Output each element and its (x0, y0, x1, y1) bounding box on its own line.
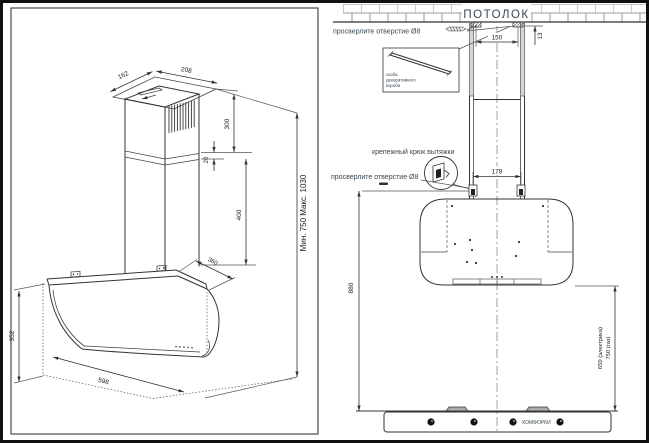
dim-hood-to-cooktop-electric: 650 (электрика) (598, 327, 604, 369)
screw-anchor-icon (379, 183, 388, 186)
ceiling-label: ПОТОЛОК (463, 9, 529, 21)
dim-total-height: Мин. 750 Макс. 1030 (299, 174, 308, 251)
pan-support-icon (446, 407, 468, 411)
dim-duct-width: 208 (180, 66, 192, 75)
dimensions-left: 162 208 300 20 400 Мин. 750 Макс. 1030 3… (9, 66, 308, 398)
drill-note-top: просверлите отверстие Ø8 (333, 26, 514, 36)
dim-hood-depth: 360 (207, 257, 219, 267)
cooktop-body (384, 412, 611, 432)
right-panel: ПОТОЛОК просверлите отверстие Ø8 (331, 4, 646, 434)
hook-label: крепежный крюк вытяжки (372, 148, 455, 156)
dim-upper-duct: 300 (224, 118, 231, 129)
mounting-holes (451, 205, 544, 278)
dim-bracket-spacing: 150 (492, 35, 503, 42)
burners-label: КОМФОРКИ (522, 420, 551, 426)
dim-hook-spacing: 178 (492, 169, 503, 176)
hood-front (420, 185, 573, 285)
dim-ceiling-offset: 13 (538, 32, 544, 39)
dimension-cage (43, 283, 292, 399)
screw-anchor-icon (446, 27, 466, 31)
inset-label-line1: скоба (386, 72, 398, 77)
hood-hook-icon (71, 271, 80, 277)
burner-knob-icon (509, 418, 516, 425)
dim-overlap: 20 (204, 156, 210, 163)
burner-knob-icon (427, 418, 434, 425)
control-buttons (175, 346, 193, 349)
dim-lower-duct: 400 (236, 209, 243, 220)
installation-drawing: 162 208 300 20 400 Мин. 750 Макс. 1030 3… (0, 0, 649, 443)
hood-body-outline (420, 199, 573, 285)
outer-frame (2, 2, 648, 442)
dim-hood-to-cooktop-gas: 750 (газ) (606, 336, 612, 359)
dim-hood-height: 352 (9, 330, 16, 341)
drawing-canvas: 162 208 300 20 400 Мин. 750 Макс. 1030 3… (0, 0, 649, 443)
left-panel: 162 208 300 20 400 Мин. 750 Макс. 1030 3… (9, 8, 318, 434)
ceiling-brick-wall: ПОТОЛОК (333, 4, 646, 23)
burner-knob-icon (470, 418, 477, 425)
burner-knob-icon (556, 418, 563, 425)
pan-support-icon (526, 407, 550, 411)
duct-isometric (113, 77, 216, 274)
dim-duct-depth: 162 (117, 70, 130, 81)
cooktop: КОМФОРКИ (356, 407, 618, 432)
dim-hook-to-cooktop: 880 (348, 282, 355, 293)
drill-note-top-label: просверлите отверстие Ø8 (333, 29, 420, 36)
hood-isometric (47, 265, 219, 357)
ceiling-bracket-icon (513, 22, 523, 27)
airflow-arrow-icon (142, 95, 156, 99)
inset-label-line3: короба (386, 83, 401, 88)
inset-label-line2: декоративного (386, 78, 416, 83)
drill-note-mid-label: просверлите отверстие Ø8 (331, 174, 418, 181)
dim-hood-width: 598 (97, 377, 110, 387)
